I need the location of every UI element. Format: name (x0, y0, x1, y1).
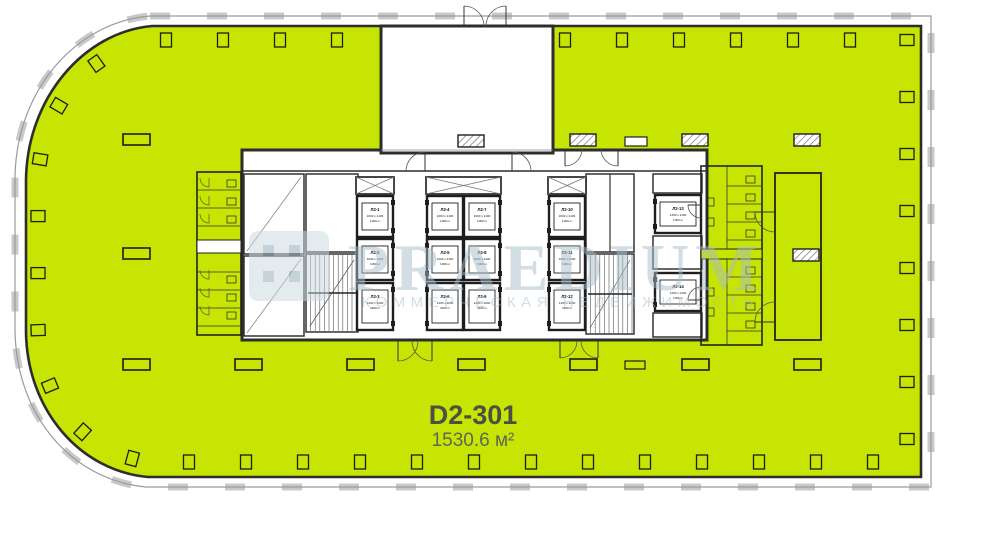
facade-column (754, 455, 765, 469)
door-jamb (547, 200, 551, 205)
core-room (653, 174, 702, 193)
door-jamb (498, 321, 502, 326)
watermark-logo-cell (289, 245, 300, 256)
facade-column (355, 455, 366, 469)
facade-column (526, 455, 537, 469)
facade-column (900, 263, 914, 274)
elevator-size: 1600 х 2100 (437, 214, 454, 218)
facade-column (275, 33, 286, 47)
watermark-logo-cell (263, 271, 274, 282)
elevator-id: Л2-10 (561, 207, 573, 212)
watermark-logo (249, 231, 329, 301)
facade-column (31, 324, 45, 335)
restroom-divider (197, 240, 241, 253)
facade-column (900, 149, 914, 160)
interior-column (570, 359, 597, 370)
facade-column (697, 455, 708, 469)
facade-column (900, 35, 914, 46)
facade-column (298, 455, 309, 469)
elevator-capacity: 1000 кг (440, 219, 450, 223)
elevator-id: Л2-1 (371, 207, 381, 212)
facade-column (583, 455, 594, 469)
door-jamb (653, 224, 657, 229)
facade-column (560, 33, 571, 47)
facade-column (900, 377, 914, 388)
elevator-id: Л2-4 (441, 207, 451, 212)
door-jamb (498, 200, 502, 205)
interior-column (123, 134, 150, 145)
door-jamb (391, 321, 395, 326)
unit-code-label: D2-301 (429, 400, 518, 430)
facade-column (900, 92, 914, 103)
wall-column (458, 135, 484, 147)
facade-column (241, 455, 252, 469)
facade-column (412, 455, 423, 469)
elevator-size: 1600 х 2100 (474, 214, 491, 218)
interior-column (682, 359, 709, 370)
wall-column (793, 249, 819, 261)
facade-column (845, 33, 856, 47)
facade-column (469, 455, 480, 469)
facade-column (31, 211, 45, 222)
elevator-capacity: 1000 кг (673, 218, 683, 222)
facade-column (32, 153, 48, 166)
facade-column (900, 206, 914, 217)
interior-column (235, 359, 262, 370)
interior-column (123, 359, 150, 370)
interior-column (458, 359, 485, 370)
facade-column (640, 455, 651, 469)
facade-column (31, 268, 45, 279)
elevator-id: Л2-13 (672, 206, 684, 211)
wall-column (682, 134, 708, 146)
door-jamb (547, 321, 551, 326)
facade-column (184, 455, 195, 469)
interior-column (123, 248, 150, 259)
facade-column (332, 33, 343, 47)
watermark-logo-cell (289, 271, 300, 282)
elevator-size: 1450 х 2100 (670, 213, 687, 217)
elevator-id: Л2-7 (478, 207, 488, 212)
unit-area-label: 1530.6 м² (432, 430, 515, 451)
door-jamb (391, 200, 395, 205)
facade-column (617, 33, 628, 47)
wall-column (794, 134, 820, 146)
facade-column (900, 320, 914, 331)
elevator-capacity: 1000 кг (477, 219, 487, 223)
core-room (653, 313, 702, 337)
facade-column (868, 455, 879, 469)
watermark-logo-cell (263, 245, 274, 256)
facade-column (218, 33, 229, 47)
floor-plan: Л2-11600 х 21001000 кгЛ2-21600 х 2100100… (0, 0, 987, 535)
watermark-tagline: КОММЕРЧЕСКАЯ НЕДВИЖИМОСТЬ (361, 294, 758, 311)
unit-label-block: D2-301 1530.6 м² (429, 400, 518, 451)
floor-plan-canvas: Л2-11600 х 21001000 кгЛ2-21600 х 2100100… (0, 0, 987, 535)
facade-column (788, 33, 799, 47)
door-jamb (425, 321, 429, 326)
elevator-shaft: Л2-131450 х 21001000 кг (653, 195, 701, 233)
wall-column (570, 134, 596, 146)
facade-column (731, 33, 742, 47)
elevator-capacity: 1000 кг (370, 219, 380, 223)
entrance-lobby (381, 26, 553, 153)
facade-column (811, 455, 822, 469)
door-jamb (653, 199, 657, 204)
elevator-capacity: 1000 кг (562, 219, 572, 223)
facade-column (900, 434, 914, 445)
interior-column-small (625, 361, 645, 369)
door-jamb (425, 200, 429, 205)
interior-column (347, 359, 374, 370)
elevator-size: 1600 х 2100 (559, 214, 576, 218)
facade-column (674, 33, 685, 47)
elevator-size: 1600 х 2100 (367, 214, 384, 218)
facade-column (161, 33, 172, 47)
interior-column (794, 359, 821, 370)
wall-column-small (625, 137, 647, 146)
